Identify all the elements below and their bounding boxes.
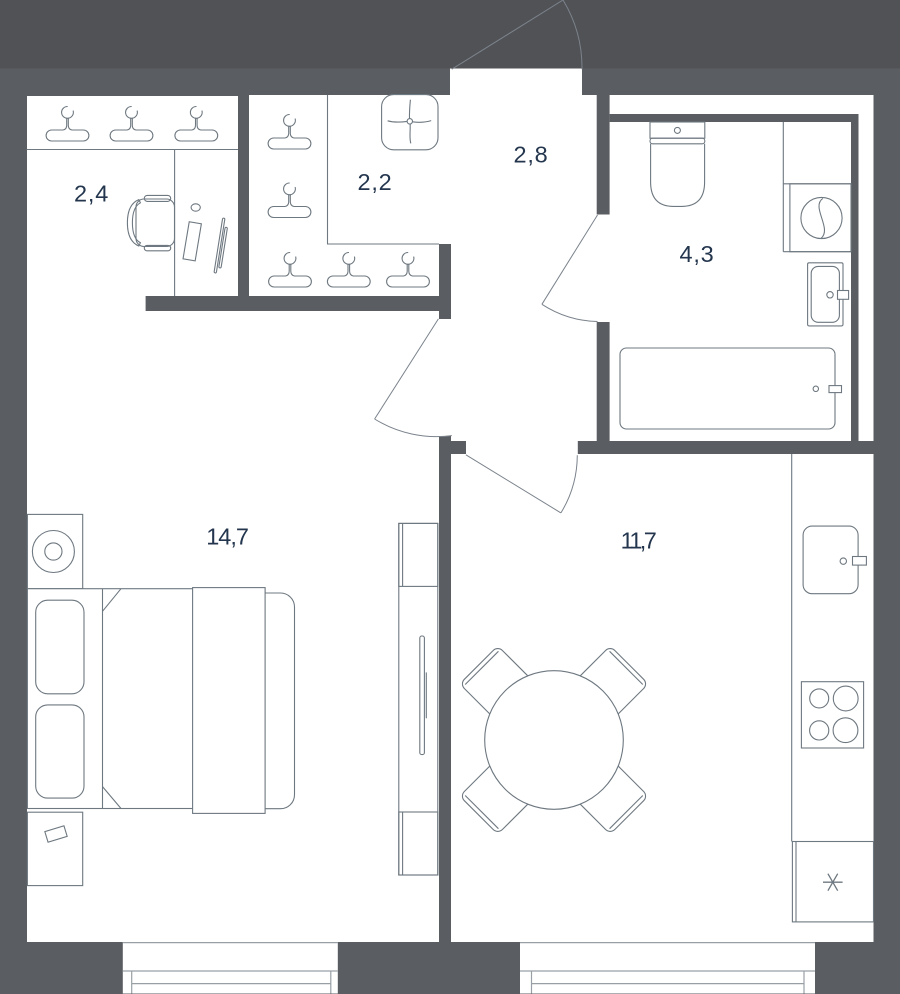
svg-text:2,4: 2,4 [74,181,109,207]
svg-text:2,2: 2,2 [357,169,392,195]
svg-text:4,3: 4,3 [679,241,714,267]
svg-text:2,8: 2,8 [513,142,548,168]
svg-text:14,7: 14,7 [206,523,248,549]
svg-text:11,7: 11,7 [621,528,656,554]
